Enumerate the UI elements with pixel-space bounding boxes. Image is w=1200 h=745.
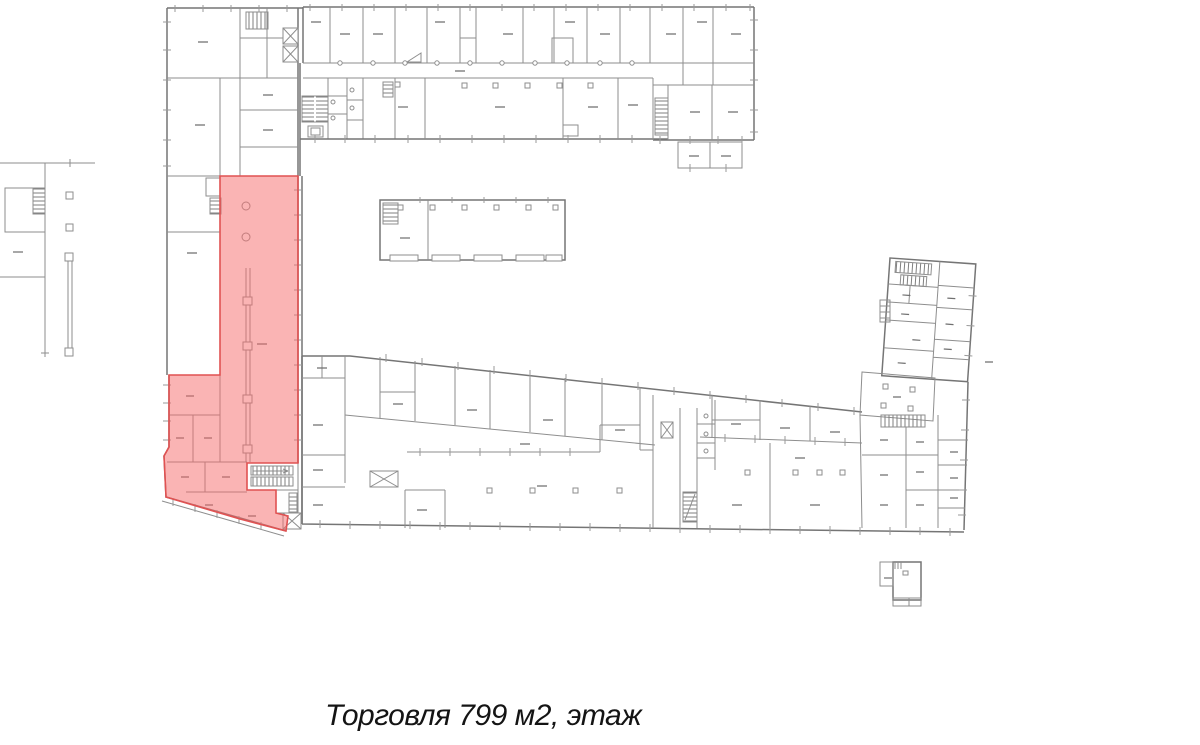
left-building-fragment [0, 159, 95, 357]
outbuilding [880, 562, 921, 606]
right-block [860, 258, 993, 530]
upper-wing [300, 7, 754, 168]
lower-wing [302, 356, 964, 532]
courtyard-building [380, 200, 565, 261]
floor-plan [0, 0, 1200, 745]
caption: Торговля 799 м2, этаж [325, 699, 641, 733]
floor-plan-page: Торговля 799 м2, этаж [0, 0, 1200, 745]
